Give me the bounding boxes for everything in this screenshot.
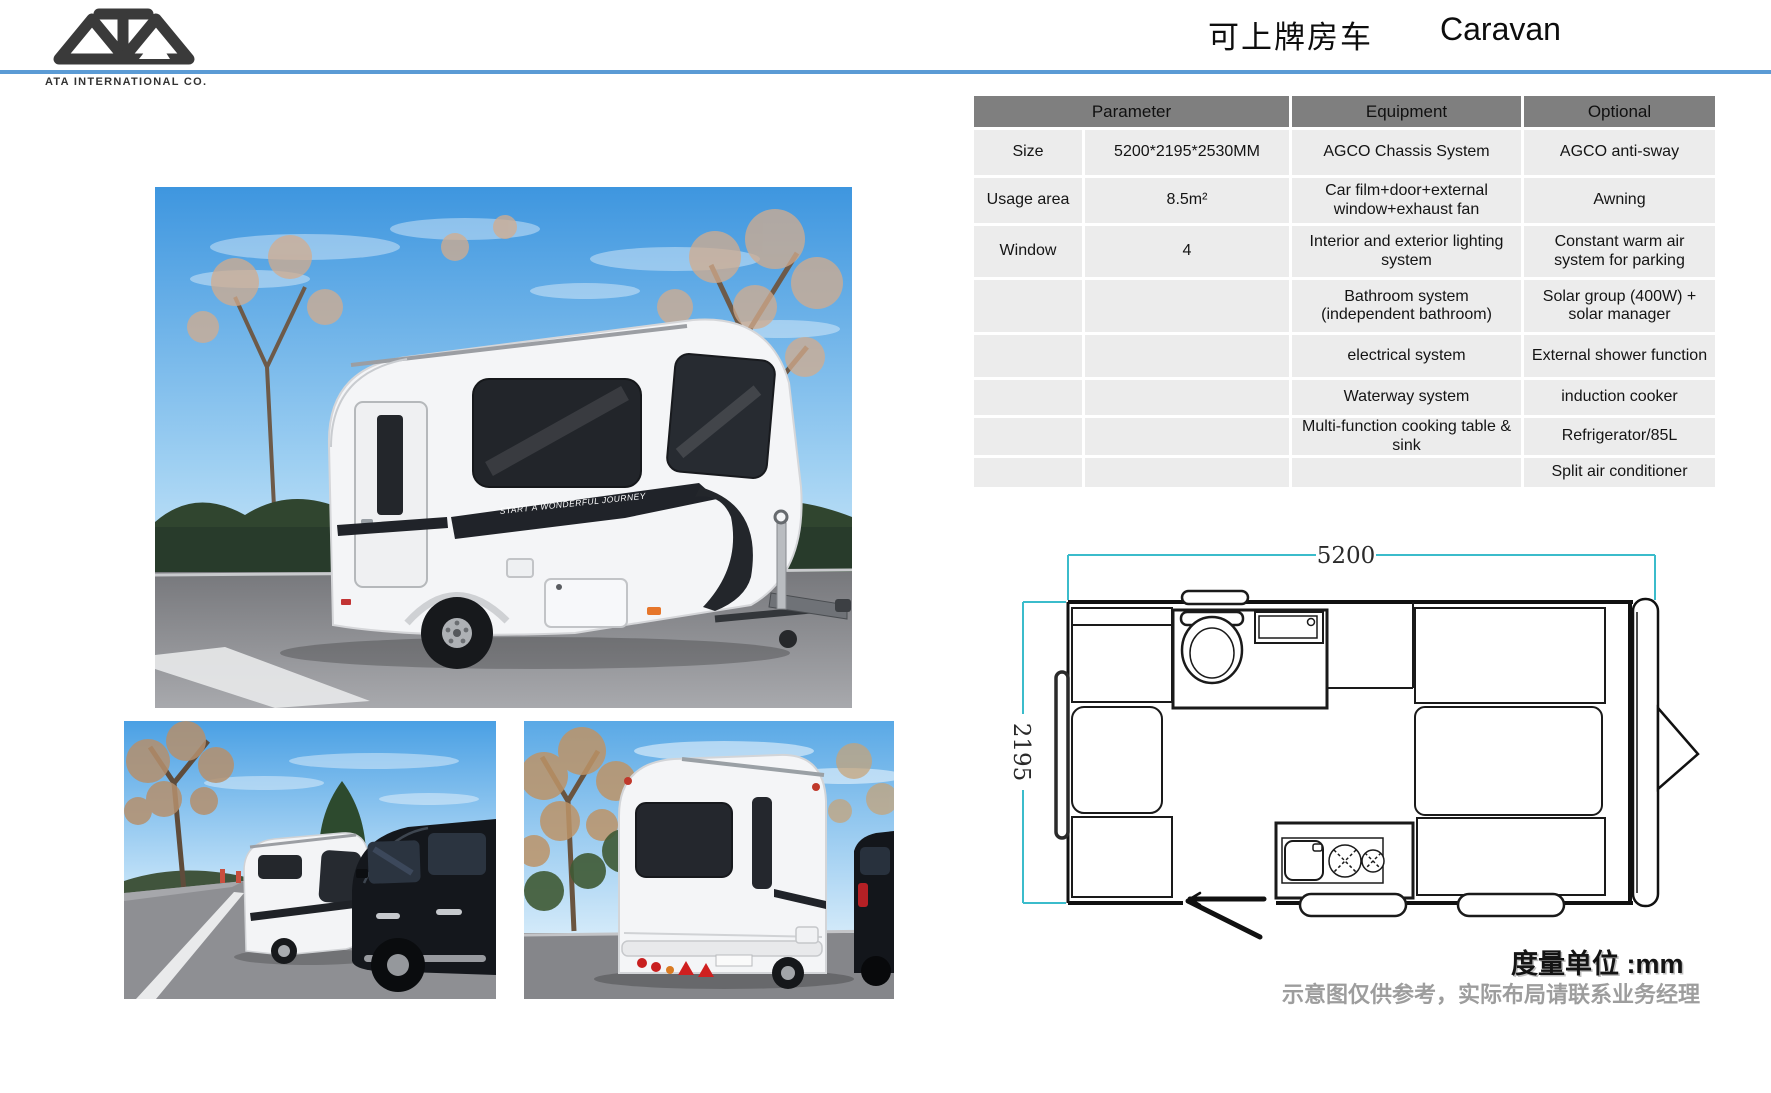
param-value <box>1084 279 1291 334</box>
table-row: Multi-function cooking table & sink Refr… <box>973 417 1717 457</box>
entry-door <box>1188 893 1264 937</box>
param-value <box>1084 417 1291 457</box>
equipment-cell <box>1291 457 1523 489</box>
param-label <box>973 279 1084 334</box>
param-value <box>1084 457 1291 489</box>
param-label <box>973 417 1084 457</box>
param-label <box>973 379 1084 417</box>
equipment-cell: Waterway system <box>1291 379 1523 417</box>
param-value: 4 <box>1084 225 1291 279</box>
equipment-cell: Bathroom system (independent bathroom) <box>1291 279 1523 334</box>
caravan-door <box>355 402 427 587</box>
ata-logo-icon <box>47 6 200 68</box>
optional-cell: Refrigerator/85L <box>1523 417 1717 457</box>
suv <box>352 819 496 992</box>
page-title-english: Caravan <box>1440 11 1561 48</box>
table-row: Size 5200*2195*2530MM AGCO Chassis Syste… <box>973 129 1717 177</box>
table-row: Waterway system induction cooker <box>973 379 1717 417</box>
param-value: 8.5m² <box>1084 177 1291 225</box>
equipment-cell: AGCO Chassis System <box>1291 129 1523 177</box>
caravan-side-photo: START A WONDERFUL JOURNEY <box>155 187 852 708</box>
table-row: Bathroom system (independent bathroom) S… <box>973 279 1717 334</box>
param-label <box>973 457 1084 489</box>
floor-plan: 5200 2195 <box>985 540 1725 950</box>
front-window <box>666 353 776 479</box>
param-value <box>1084 379 1291 417</box>
param-label <box>973 334 1084 379</box>
header-optional: Optional <box>1523 95 1717 129</box>
dimension-width-label: 2195 <box>1008 723 1034 782</box>
burners <box>1329 845 1384 877</box>
table-row: Window 4 Interior and exterior lighting … <box>973 225 1717 279</box>
equipment-cell: Interior and exterior lighting system <box>1291 225 1523 279</box>
hitch-triangle <box>1658 708 1698 789</box>
optional-cell: Awning <box>1523 177 1717 225</box>
equipment-cell: Car film+door+external window+exhaust fa… <box>1291 177 1523 225</box>
param-label: Size <box>973 129 1084 177</box>
dimension-length-label: 5200 <box>1317 543 1376 569</box>
optional-cell: Constant warm air system for parking <box>1523 225 1717 279</box>
unit-note: 度量单位 :mm <box>1511 942 1684 981</box>
optional-cell: AGCO anti-sway <box>1523 129 1717 177</box>
header-parameter: Parameter <box>973 95 1291 129</box>
kitchen-block <box>1276 823 1413 898</box>
caravan: START A WONDERFUL JOURNEY <box>329 320 851 669</box>
accent-divider <box>0 70 1771 74</box>
optional-cell: Solar group (400W) + solar manager <box>1523 279 1717 334</box>
cabinet <box>1327 602 1413 688</box>
bed-top-right <box>1415 608 1605 703</box>
table-row: Split air conditioner <box>973 457 1717 489</box>
slide-page: ATA INTERNATIONAL CO. 可上牌房车 Caravan Para… <box>0 0 1771 1093</box>
spec-header-row: Parameter Equipment Optional <box>973 95 1717 129</box>
page-title-chinese: 可上牌房车 <box>1208 12 1373 57</box>
bed-top-left <box>1072 608 1172 702</box>
table-row: electrical system External shower functi… <box>973 334 1717 379</box>
caravan-towing-photo <box>124 721 496 999</box>
side-window <box>473 379 641 487</box>
param-value: 5200*2195*2530MM <box>1084 129 1291 177</box>
optional-cell: induction cooker <box>1523 379 1717 417</box>
suv-partial <box>854 831 894 986</box>
spec-table: Parameter Equipment Optional Size 5200*2… <box>971 93 1718 490</box>
bed-bottom-right <box>1417 818 1605 895</box>
disclaimer: 示意图仅供参考，实际布局请联系业务经理 <box>1282 977 1700 1009</box>
param-label: Usage area <box>973 177 1084 225</box>
equipment-cell: Multi-function cooking table & sink <box>1291 417 1523 457</box>
optional-cell: Split air conditioner <box>1523 457 1717 489</box>
header-equipment: Equipment <box>1291 95 1523 129</box>
seat-left <box>1072 707 1162 813</box>
bed-mid-right <box>1415 707 1602 815</box>
logo-company-name: ATA INTERNATIONAL CO. <box>45 76 265 88</box>
seat-bottom-left <box>1072 817 1172 897</box>
optional-cell: External shower function <box>1523 334 1717 379</box>
caravan-rear <box>619 755 826 989</box>
caravan-rear-photo <box>524 721 894 999</box>
param-value <box>1084 334 1291 379</box>
equipment-cell: electrical system <box>1291 334 1523 379</box>
table-row: Usage area 8.5m² Car film+door+external … <box>973 177 1717 225</box>
param-label: Window <box>973 225 1084 279</box>
